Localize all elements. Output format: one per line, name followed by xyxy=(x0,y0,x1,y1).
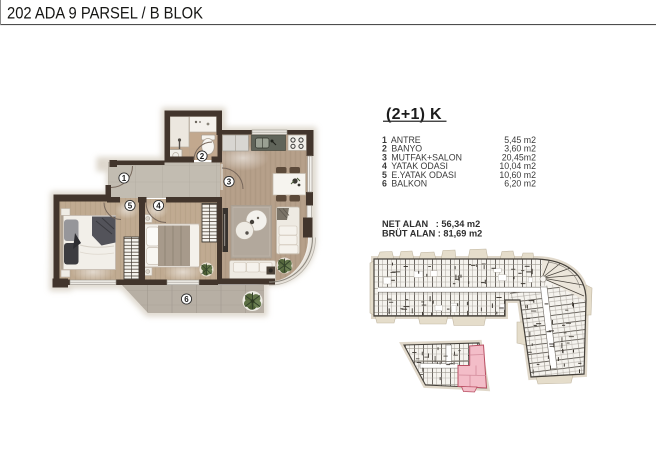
svg-text:5: 5 xyxy=(128,201,133,210)
svg-text:2: 2 xyxy=(200,152,205,161)
svg-text:(2+1) K: (2+1) K xyxy=(386,106,442,123)
svg-text:6 BALKON: 6 BALKON xyxy=(382,179,427,189)
svg-text:6: 6 xyxy=(184,295,189,304)
svg-text:6,20 m2: 6,20 m2 xyxy=(504,179,536,189)
svg-text:BRÜT ALAN : 81,69 m2: BRÜT ALAN : 81,69 m2 xyxy=(382,228,482,238)
svg-text:202 ADA 9 PARSEL / B BLOK: 202 ADA 9 PARSEL / B BLOK xyxy=(7,4,204,23)
svg-text:4: 4 xyxy=(156,201,161,210)
svg-text:1: 1 xyxy=(122,174,127,183)
svg-text:3: 3 xyxy=(227,177,232,186)
